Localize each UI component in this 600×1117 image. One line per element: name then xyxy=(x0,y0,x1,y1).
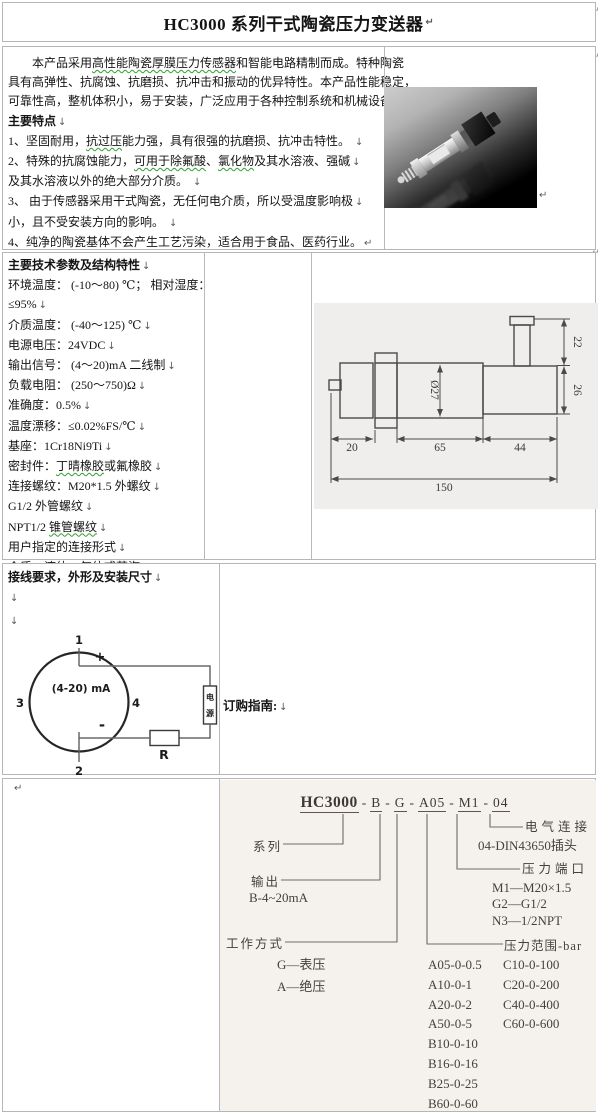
model-part: - xyxy=(484,795,490,811)
overview-section: 本产品采用高性能陶瓷厚膜压力传感器和智能电路精制而成。特种陶瓷具有高弹性、抗腐蚀… xyxy=(2,46,596,250)
dim-26: 26 xyxy=(571,384,583,396)
spec-line: ≤95%↓ xyxy=(8,295,204,315)
pressure-range-code: C20-0-200 xyxy=(503,975,559,995)
spec-line: 连接螺纹：M20*1.5 外螺纹↓ xyxy=(8,477,204,497)
pressure-range-label: 压力范围-bar xyxy=(504,935,582,954)
dim-150: 150 xyxy=(435,482,453,494)
spec-line: 用户指定的连接形式↓ xyxy=(8,538,204,558)
overview-line: 及其水溶液以外的绝大部分介质。 ↓ xyxy=(8,172,382,192)
overview-line: 可靠性高，整机体积小，易于安装，广泛应用于各种控制系统和机械设备中。 xyxy=(8,92,382,111)
pressure-range-code: A50-0-5 xyxy=(428,1014,482,1034)
model-part: M1 xyxy=(458,795,481,812)
pressure-range-code: A10-0-1 xyxy=(428,975,482,995)
power-supply-label: 源 xyxy=(206,708,214,718)
output-label: 输出 xyxy=(251,871,280,890)
polarity-minus-label: - xyxy=(99,716,105,734)
specs-section: 主要技术参数及结构特性↓环境温度： (-10～80) ℃； 相对湿度：≤95%↓… xyxy=(2,252,596,560)
model-number: HC3000-B-G-A05-M1-04 xyxy=(298,794,511,813)
order-guide-heading-text: 订购指南: xyxy=(223,699,277,713)
dim-20: 20 xyxy=(346,442,358,454)
overview-text-cell: 本产品采用高性能陶瓷厚膜压力传感器和智能电路精制而成。特种陶瓷具有高弹性、抗腐蚀… xyxy=(3,47,382,249)
pressure-range-code: A05-0-0.5 xyxy=(428,955,482,975)
overview-line: 具有高弹性、抗腐蚀、抗磨损、抗冲击和振动的优异特性。本产品性能稳定， xyxy=(8,73,382,92)
spec-line: 密封件：丁晴橡胶或氟橡胶↓ xyxy=(8,457,204,477)
series-label: 系列 xyxy=(253,836,282,855)
overview-line: 3、 由于传感器采用干式陶瓷，无任何电介质，所以受温度影响极↓ xyxy=(8,192,382,212)
dim-22: 22 xyxy=(571,336,583,348)
output-value: B-4~20mA xyxy=(249,890,308,906)
wiring-section: 接线要求，外形及安装尺寸↓ ↓↓ 1 2 3 4 + xyxy=(2,563,596,775)
pressure-range-code: C10-0-100 xyxy=(503,955,559,975)
pressure-port-option: N3—1/2NPT xyxy=(492,913,571,929)
spec-line: 温度漂移：≤0.02%FS/℃↓ xyxy=(8,417,204,437)
pressure-port-label: 压力端口 xyxy=(522,858,588,877)
spec-line: 基座：1Cr18Ni9Ti↓ xyxy=(8,437,204,457)
pressure-port-option: G2—G1/2 xyxy=(492,896,571,912)
spec-line: G1/2 外管螺纹↓ xyxy=(8,497,204,517)
model-part: - xyxy=(362,795,368,811)
electrical-connection-value: 04-DIN43650插头 xyxy=(478,835,577,854)
transmitter-outline xyxy=(329,317,557,429)
working-mode-option: G—表压 xyxy=(277,954,325,976)
model-part: - xyxy=(449,795,455,811)
working-mode-label: 工作方式 xyxy=(226,933,284,952)
ordering-guide-scan: HC3000-B-G-A05-M1-04 系列 电气连接 04-DIN43650… xyxy=(220,780,596,1111)
terminal-1-label: 1 xyxy=(75,633,83,647)
spec-line: 准确度：0.5%↓ xyxy=(8,396,204,416)
pressure-range-column-2: C10-0-100C20-0-200C40-0-400C60-0-600 xyxy=(503,955,559,1034)
spec-line: 负载电阻： (250～750)Ω↓ xyxy=(8,376,204,396)
pressure-range-code: A20-0-2 xyxy=(428,995,482,1015)
wiring-diagram: 1 2 3 4 + - (4-20) mA R 电 源 xyxy=(3,564,219,776)
spec-line: 主要技术参数及结构特性↓ xyxy=(8,256,204,276)
line-break-mark: ↓ xyxy=(277,702,287,713)
working-mode-options: G—表压A—绝压 xyxy=(277,954,325,999)
working-mode-option: A—绝压 xyxy=(277,976,325,998)
pressure-range-code: C60-0-600 xyxy=(503,1014,559,1034)
cell-divider xyxy=(311,253,312,559)
cell-divider xyxy=(204,253,205,559)
spec-line: 输出信号： (4～20)mA 二线制↓ xyxy=(8,356,204,376)
paragraph-mark: ↵ xyxy=(12,783,22,794)
model-part: G xyxy=(394,795,407,812)
model-part: HC3000 xyxy=(300,794,359,813)
pressure-range-code: B60-0-60 xyxy=(428,1094,482,1114)
product-photo xyxy=(384,87,537,208)
specs-text-cell: 主要技术参数及结构特性↓环境温度： (-10～80) ℃； 相对湿度：≤95%↓… xyxy=(3,253,204,559)
terminal-3-label: 3 xyxy=(16,696,24,710)
order-guide-heading: 订购指南:↓ xyxy=(223,695,288,714)
overview-line: 2、特殊的抗腐蚀能力，可用于除氟酸、氯化物及其水溶液、强碱↓ xyxy=(8,152,382,172)
overview-line: 1、坚固耐用，抗过压能力强，具有很强的抗磨损、抗冲击特性。 ↓ xyxy=(8,132,382,152)
dim-65: 65 xyxy=(434,442,446,454)
load-resistor-label: R xyxy=(159,747,169,762)
pressure-range-code: B10-0-10 xyxy=(428,1034,482,1054)
spec-line: 介质温度： (-40～125) ℃↓ xyxy=(8,316,204,336)
datasheet-page: ↵ ↵ ↵ HC3000 系列干式陶瓷压力变送器 ↵ 本产品采用高性能陶瓷厚膜压… xyxy=(0,0,600,1117)
model-part: A05 xyxy=(418,795,446,812)
paragraph-mark: ↵ xyxy=(537,190,547,201)
model-part: - xyxy=(385,795,391,811)
model-part: B xyxy=(370,795,382,812)
page-title-text: HC3000 系列干式陶瓷压力变送器 xyxy=(164,10,424,35)
overview-line: 主要特点↓ xyxy=(8,112,382,132)
dimension-lines xyxy=(331,319,570,483)
overview-line: 小，且不受安装方向的影响。 ↓ xyxy=(8,213,382,233)
spec-line: NPT1/2 锥管螺纹↓ xyxy=(8,518,204,538)
title-section: HC3000 系列干式陶瓷压力变送器 ↵ xyxy=(2,2,596,42)
paragraph-mark: ↵ xyxy=(423,17,434,28)
dimension-drawing: Ø27 22 26 20 65 44 150 xyxy=(314,303,598,509)
dim-44: 44 xyxy=(514,442,526,454)
spec-line: 电源电压：24VDC↓ xyxy=(8,336,204,356)
model-part: 04 xyxy=(492,795,510,812)
pressure-range-column-1: A05-0-0.5A10-0-1A20-0-2A50-0-5B10-0-10B1… xyxy=(428,955,482,1113)
ordering-section: ↵ HC3000-B-G-A05-M1-04 系列 电气连接 04-DIN436… xyxy=(2,778,596,1112)
overview-line: 4、纯净的陶瓷基体不会产生工艺污染，适合用于食品、医药行业。↵ xyxy=(8,233,382,253)
cell-divider xyxy=(219,564,220,774)
pressure-range-code: C40-0-400 xyxy=(503,995,559,1015)
polarity-plus-label: + xyxy=(95,650,106,665)
model-part: - xyxy=(410,795,416,811)
page-title: HC3000 系列干式陶瓷压力变送器 ↵ xyxy=(3,3,595,41)
signal-range-label: (4-20) mA xyxy=(52,683,111,695)
terminal-4-label: 4 xyxy=(132,696,140,710)
electrical-connection-label: 电气连接 xyxy=(525,816,591,835)
pressure-range-code: B16-0-16 xyxy=(428,1054,482,1074)
pressure-range-code: B25-0-25 xyxy=(428,1074,482,1094)
pressure-port-options: M1—M20×1.5G2—G1/2N3—1/2NPT xyxy=(492,880,571,929)
power-supply-label: 电 xyxy=(206,692,214,702)
dim-diameter: Ø27 xyxy=(428,380,440,400)
overview-line: 本产品采用高性能陶瓷厚膜压力传感器和智能电路精制而成。特种陶瓷 xyxy=(8,54,382,73)
spec-line: 环境温度： (-10～80) ℃； 相对湿度： xyxy=(8,276,204,295)
terminal-2-label: 2 xyxy=(75,764,83,776)
wiring-shapes xyxy=(30,648,217,762)
pressure-port-option: M1—M20×1.5 xyxy=(492,880,571,896)
